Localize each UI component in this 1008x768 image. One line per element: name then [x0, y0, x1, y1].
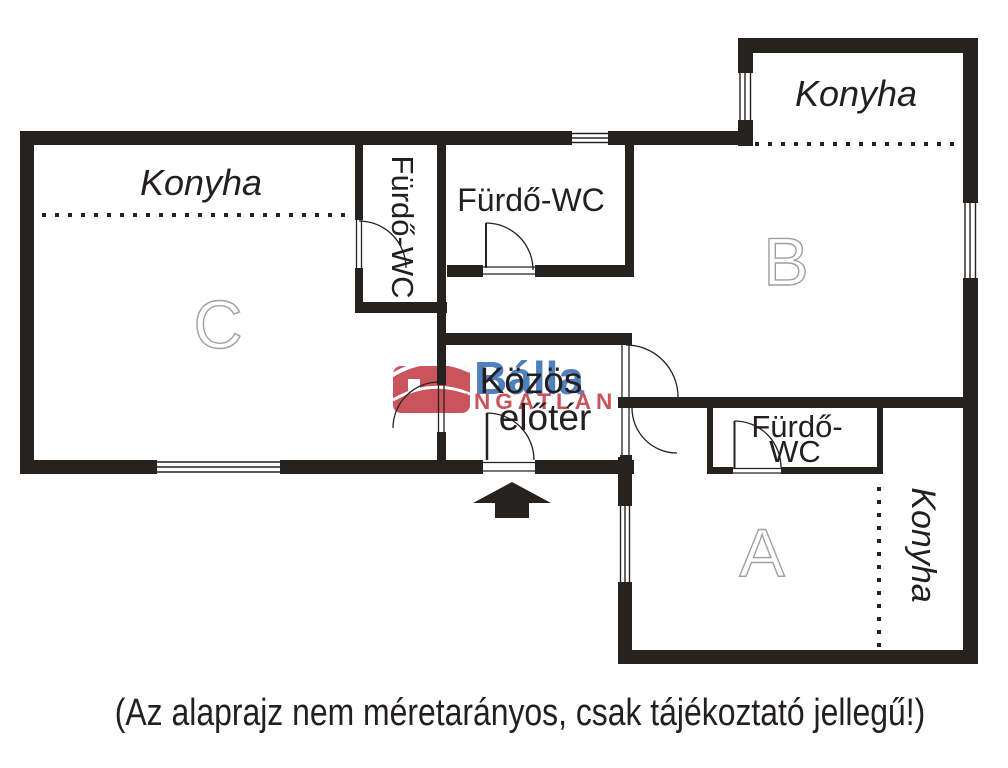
- room-label-hall-line2: előtér: [499, 397, 592, 438]
- unit-letter-a: A: [739, 515, 785, 591]
- entrance-arrow-icon: [473, 482, 551, 518]
- wall-segment: [445, 333, 632, 345]
- door-icon: [622, 408, 677, 455]
- door-icon: [483, 223, 535, 274]
- wall-segment: [355, 145, 363, 220]
- house-icon: [391, 363, 470, 413]
- wall-segment: [618, 650, 978, 664]
- wall-segment: [20, 460, 157, 474]
- floorplan-canvas: Bálla INGATLAN: [0, 0, 1008, 768]
- wall-segment: [618, 457, 632, 506]
- window-icon: [157, 462, 280, 472]
- wall-segment: [535, 265, 634, 277]
- wall-segment: [437, 432, 446, 460]
- wall-segment: [738, 38, 978, 53]
- wall-segment: [618, 582, 632, 664]
- wall-segment: [625, 145, 634, 277]
- wall-segment: [963, 278, 978, 664]
- wall-segment: [437, 145, 446, 385]
- room-label-bathroom-middle: Fürdő-WC: [457, 182, 605, 218]
- wall-segment: [738, 38, 753, 73]
- wall-segment: [618, 397, 977, 408]
- floorplan-svg: Bálla INGATLAN: [0, 0, 1008, 768]
- room-label-bathroom-left: Fürdő-WC: [385, 156, 420, 299]
- disclaimer-caption: (Az alaprajz nem méretarányos, csak tájé…: [115, 691, 925, 733]
- window-icon: [572, 134, 608, 143]
- walls: [20, 38, 978, 664]
- wall-segment: [355, 302, 447, 313]
- room-label-bathroom-a-line2: WC: [769, 434, 821, 469]
- wall-segment: [877, 408, 883, 474]
- wall-segment: [608, 131, 753, 145]
- wall-segment: [280, 460, 483, 474]
- wall-segment: [20, 131, 34, 474]
- room-label-kitchen-c: Konyha: [140, 162, 262, 203]
- wall-segment: [707, 467, 733, 474]
- wall-segment: [707, 408, 713, 474]
- unit-letter-c: C: [193, 287, 242, 363]
- room-label-kitchen-b: Konyha: [795, 73, 917, 114]
- room-label-hall-line1: Közös: [480, 360, 583, 401]
- windows: [157, 73, 976, 582]
- wall-segment: [738, 120, 753, 146]
- room-label-kitchen-a: Konyha: [904, 487, 942, 602]
- window-icon: [621, 506, 630, 582]
- wall-segment: [963, 53, 978, 203]
- door-icon: [622, 345, 678, 397]
- window-icon: [740, 73, 751, 120]
- wall-segment: [447, 265, 483, 277]
- unit-letter-b: B: [763, 224, 808, 300]
- wall-segment: [20, 131, 572, 145]
- window-icon: [965, 203, 976, 278]
